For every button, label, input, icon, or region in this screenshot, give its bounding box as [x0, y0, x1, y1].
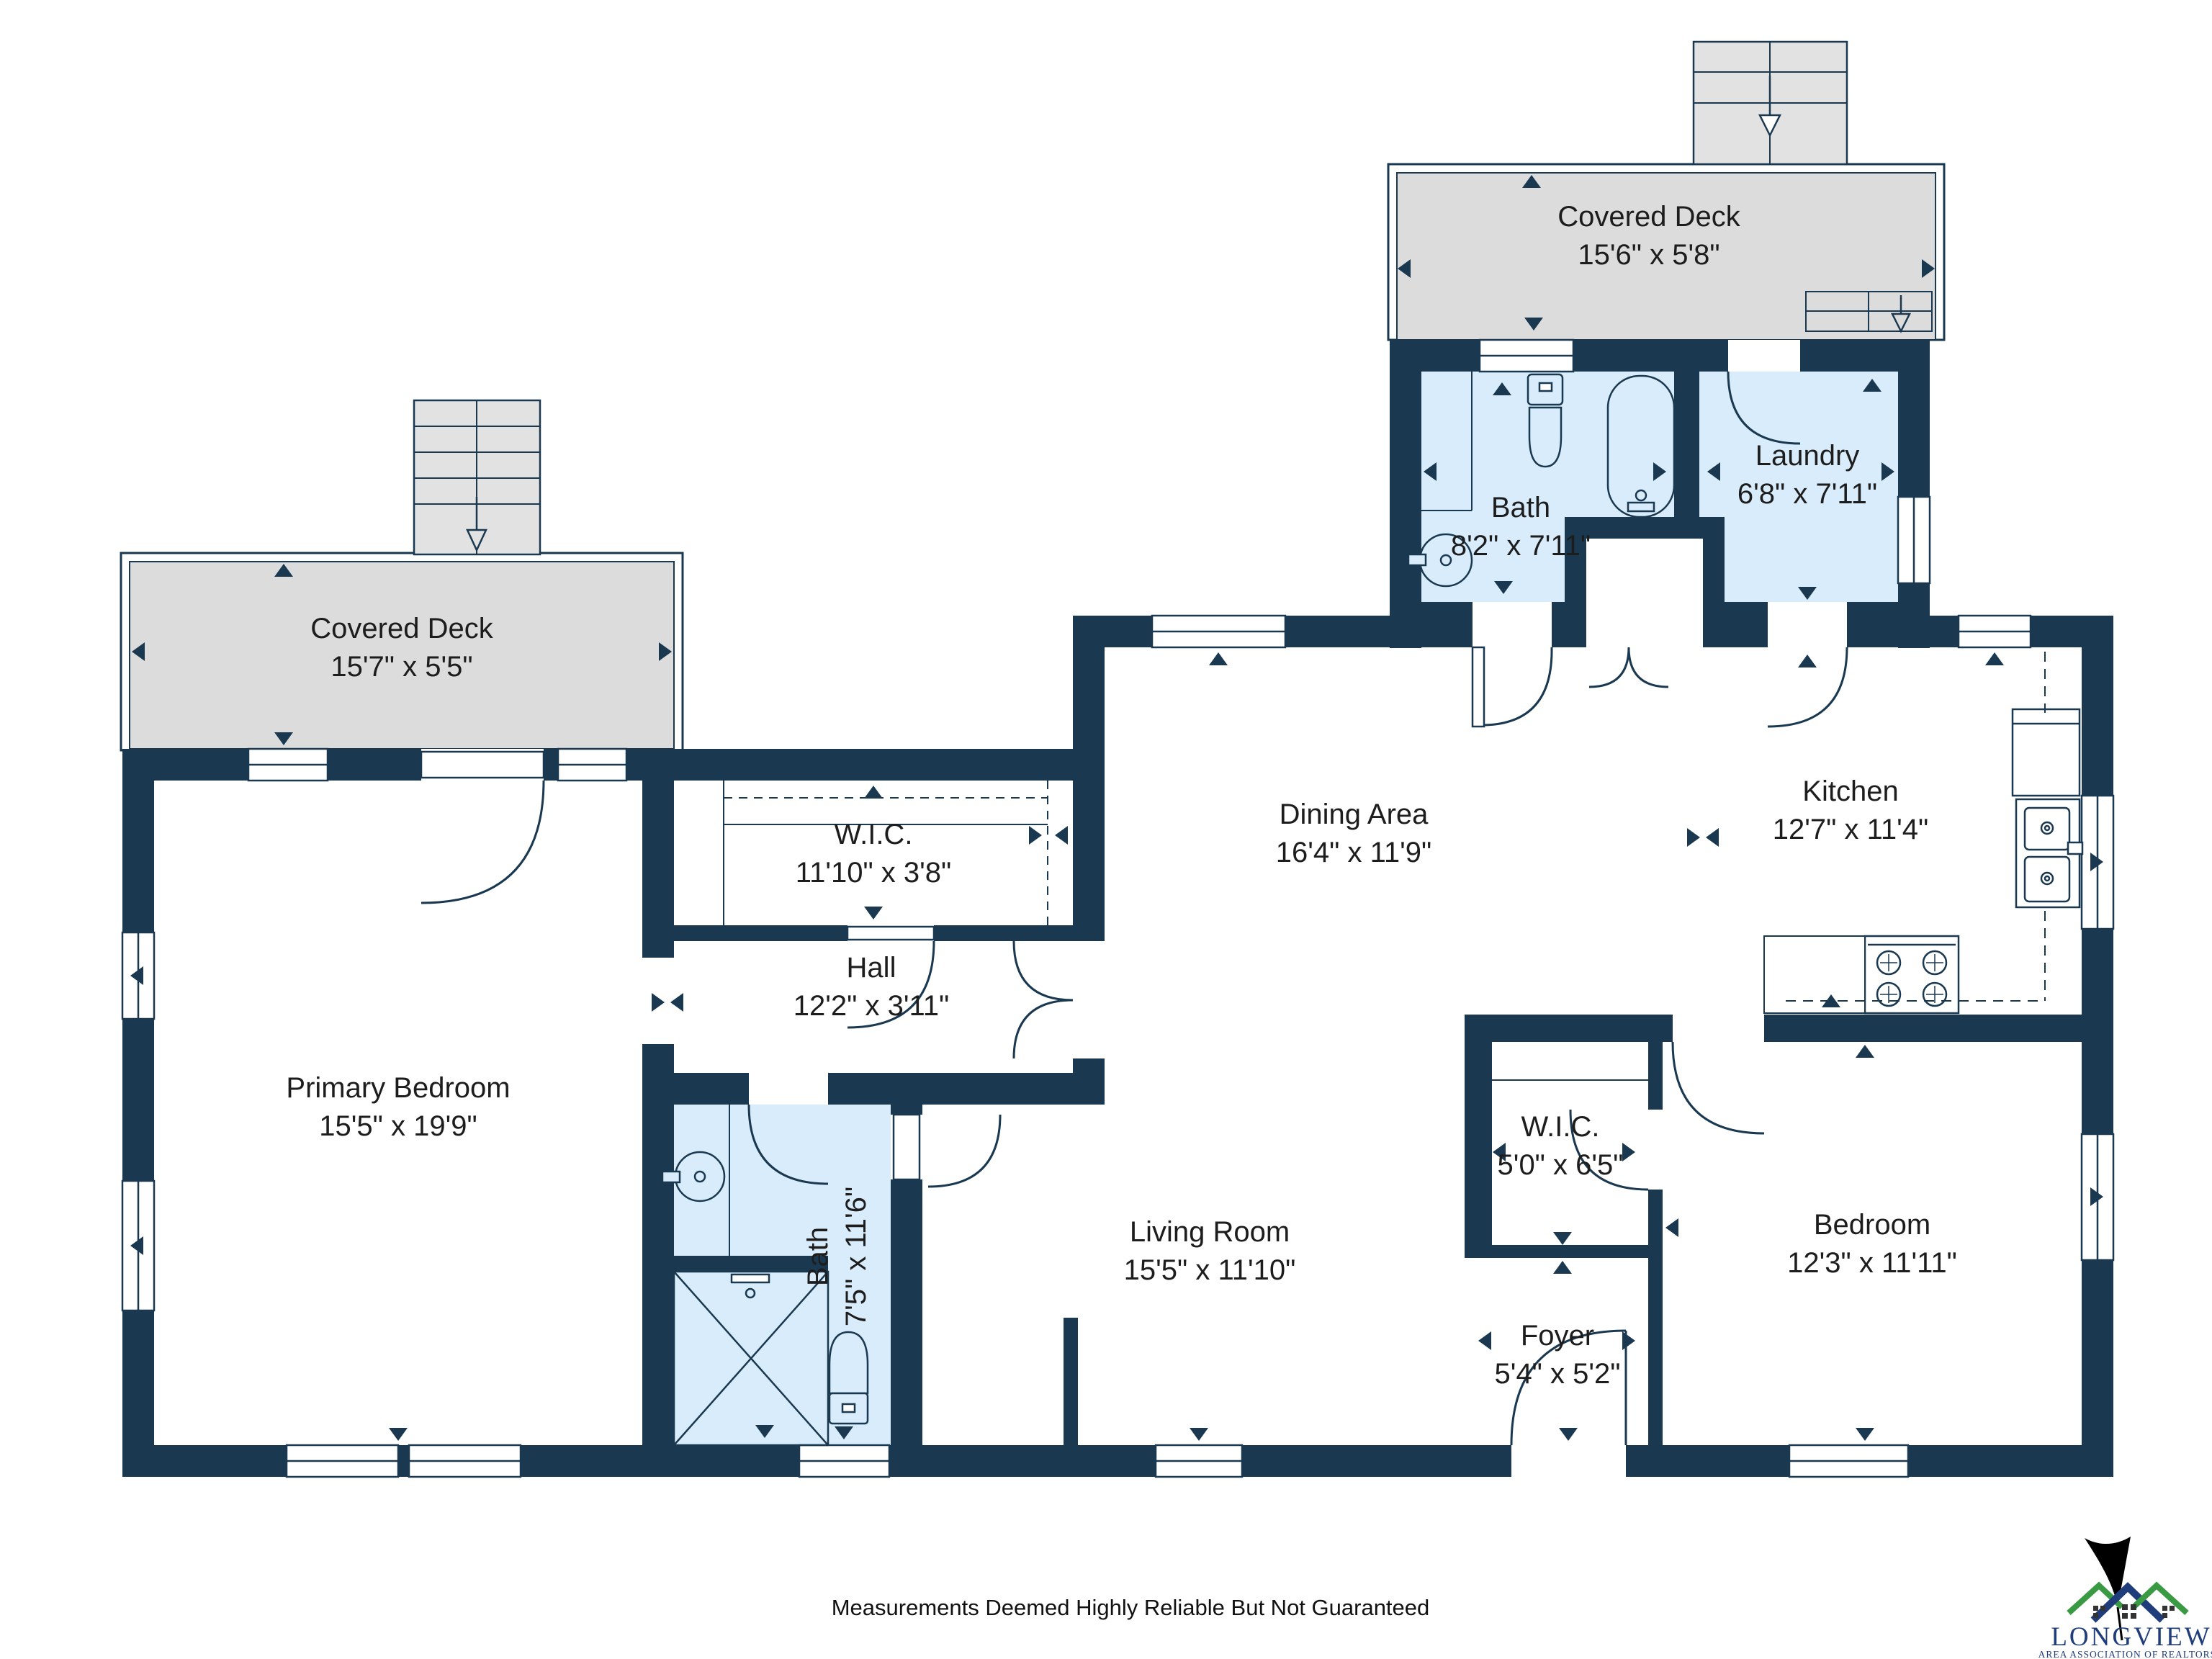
room-dims: 11'10" x 3'8"	[796, 854, 951, 892]
stairs-top-icon	[1694, 42, 1847, 164]
room-label-kitchen: Kitchen 12'7" x 11'4"	[1773, 773, 1928, 849]
houses-icon	[2069, 1586, 2187, 1620]
realtor-logo: LONGVIEW AREA ASSOCIATION OF REALTORS®	[2056, 1532, 2207, 1659]
room-label-wic-small: W.I.C. 5'0" x 6'5"	[1498, 1108, 1624, 1184]
room-label-foyer: Foyer 5'4" x 5'2"	[1495, 1317, 1621, 1393]
room-label-dining: Dining Area 16'4" x 11'9"	[1276, 796, 1431, 872]
fridge-icon	[2013, 709, 2080, 796]
room-dims: 5'0" x 6'5"	[1498, 1146, 1624, 1184]
floor-plan-page: Covered Deck 15'6" x 5'8" Bath 8'2" x 7'…	[0, 0, 2212, 1659]
room-name: Covered Deck	[310, 610, 493, 648]
room-name: Living Room	[1124, 1213, 1296, 1251]
room-dims: 5'4" x 5'2"	[1495, 1355, 1621, 1393]
room-dims: 7'5" x 11'6"	[837, 1187, 876, 1326]
room-name: Kitchen	[1773, 773, 1928, 811]
logo-title: LONGVIEW	[2051, 1622, 2211, 1653]
toilet2-icon	[829, 1332, 868, 1424]
room-name: W.I.C.	[796, 816, 951, 854]
room-name: W.I.C.	[1498, 1108, 1624, 1146]
room-name: Covered Deck	[1557, 198, 1740, 236]
room-name: Bedroom	[1787, 1206, 1957, 1244]
room-dims: 12'2" x 3'11"	[793, 987, 949, 1025]
room-name: Hall	[793, 949, 949, 987]
room-label-bedroom: Bedroom 12'3" x 11'11"	[1787, 1206, 1957, 1282]
room-name: Laundry	[1737, 437, 1877, 475]
utility-closet	[1586, 539, 1703, 647]
stairs-deck-icon	[1806, 292, 1932, 331]
room-dims: 15'5" x 19'9"	[286, 1107, 510, 1146]
room-dims: 6'8" x 7'11"	[1737, 475, 1877, 513]
room-label-bath-main: Bath 7'5" x 11'6"	[799, 1187, 876, 1326]
bathtub-icon	[1608, 376, 1674, 517]
room-label-wic-main: W.I.C. 11'10" x 3'8"	[796, 816, 951, 892]
room-dims: 15'7" x 5'5"	[310, 648, 493, 686]
room-name: Bath	[799, 1187, 837, 1326]
room-dims: 16'4" x 11'9"	[1276, 834, 1431, 872]
room-dims: 12'7" x 11'4"	[1773, 811, 1928, 849]
stairs-left-icon	[414, 400, 540, 554]
room-label-bath-top: Bath 8'2" x 7'11"	[1451, 489, 1591, 565]
logo-subtitle: AREA ASSOCIATION OF REALTORS®	[2038, 1649, 2212, 1659]
room-label-hall: Hall 12'2" x 3'11"	[793, 949, 949, 1025]
room-name: Dining Area	[1276, 796, 1431, 834]
room-name: Bath	[1451, 489, 1591, 527]
room-dims: 8'2" x 7'11"	[1451, 527, 1591, 565]
room-name: Primary Bedroom	[286, 1069, 510, 1107]
disclaimer-text: Measurements Deemed Highly Reliable But …	[832, 1595, 1430, 1621]
room-dims: 15'6" x 5'8"	[1557, 236, 1740, 274]
room-name: Foyer	[1495, 1317, 1621, 1355]
kitchen-sink-icon	[2016, 799, 2082, 907]
room-label-covered-deck-top: Covered Deck 15'6" x 5'8"	[1557, 198, 1740, 274]
room-label-primary-bedroom: Primary Bedroom 15'5" x 19'9"	[286, 1069, 510, 1146]
room-label-covered-deck-left: Covered Deck 15'7" x 5'5"	[310, 610, 493, 686]
room-dims: 15'5" x 11'10"	[1124, 1251, 1296, 1290]
room-label-laundry: Laundry 6'8" x 7'11"	[1737, 437, 1877, 513]
room-dims: 12'3" x 11'11"	[1787, 1244, 1957, 1282]
room-label-living: Living Room 15'5" x 11'10"	[1124, 1213, 1296, 1290]
toilet-icon	[1528, 374, 1563, 467]
